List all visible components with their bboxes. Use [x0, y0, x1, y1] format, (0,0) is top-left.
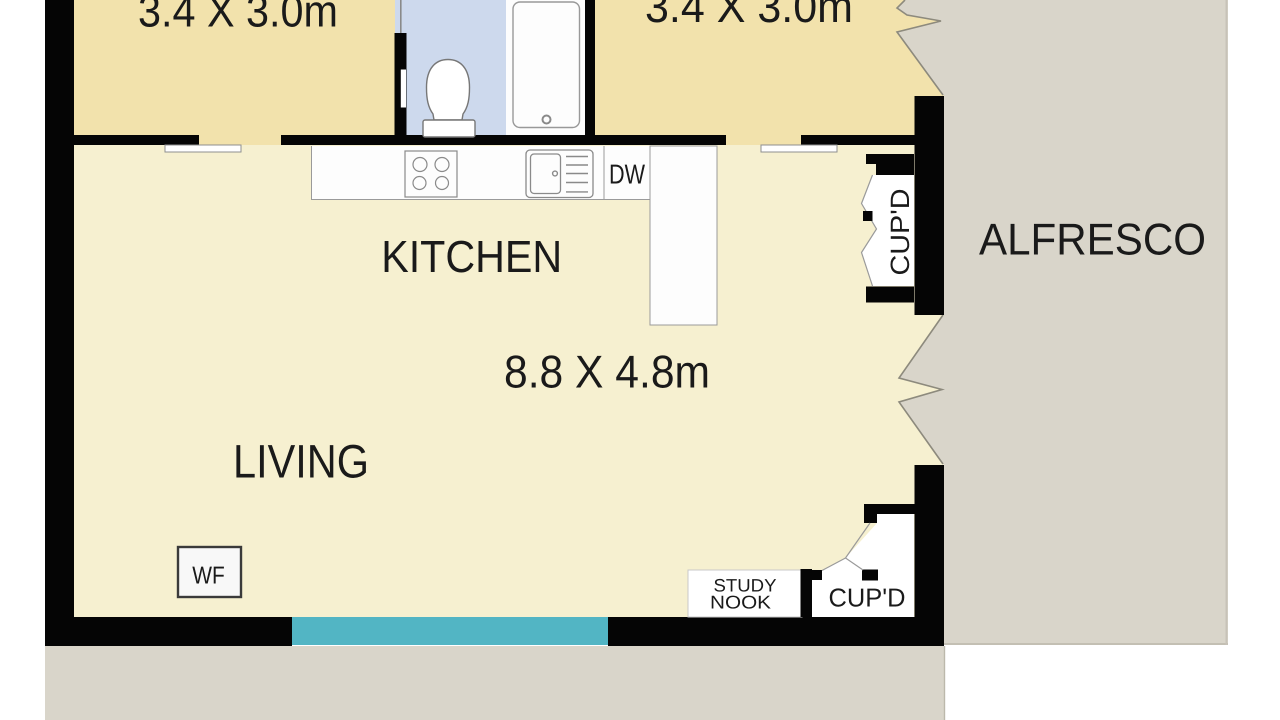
svg-text:NOOK: NOOK [710, 592, 772, 613]
svg-text:3.4 X 3.0m: 3.4 X 3.0m [138, 0, 338, 37]
svg-text:KITCHEN: KITCHEN [381, 231, 562, 282]
svg-text:8.8 X 4.8m: 8.8 X 4.8m [504, 346, 710, 398]
svg-text:3.4 X 3.0m: 3.4 X 3.0m [645, 0, 853, 32]
svg-text:DW: DW [609, 159, 645, 190]
svg-text:CUP'D: CUP'D [829, 583, 906, 613]
svg-text:LIVING: LIVING [233, 435, 369, 488]
svg-text:WF: WF [192, 563, 225, 590]
svg-text:CUP'D: CUP'D [885, 189, 915, 276]
svg-text:ALFRESCO: ALFRESCO [979, 216, 1206, 265]
